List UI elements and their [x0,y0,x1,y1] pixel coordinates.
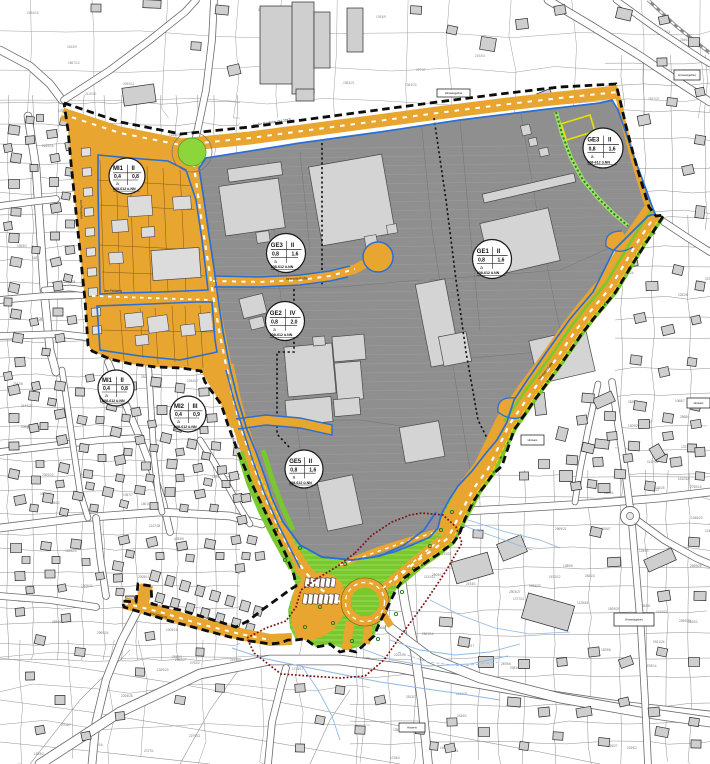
svg-text:2383/21: 2383/21 [343,81,355,85]
svg-text:2513/7: 2513/7 [406,695,416,699]
svg-text:1309/26: 1309/26 [628,424,640,428]
svg-text:2969/21: 2969/21 [555,527,567,531]
svg-text:1728/4: 1728/4 [390,756,400,760]
svg-text:Am Pfarracker: Am Pfarracker [79,200,84,219]
svg-text:1246/24: 1246/24 [705,529,710,533]
svg-text:2205/28: 2205/28 [121,694,133,698]
svg-text:1244/1: 1244/1 [639,549,649,553]
svg-text:2159/2: 2159/2 [627,746,637,750]
svg-text:0,4: 0,4 [114,174,121,180]
svg-text:0,8: 0,8 [589,146,596,152]
svg-text:608-612 ü.NN: 608-612 ü.NN [477,271,500,275]
svg-text:608-612 ü.NN: 608-612 ü.NN [113,187,136,191]
svg-text:1048/20: 1048/20 [691,516,703,520]
svg-text:2434/1: 2434/1 [457,714,467,718]
svg-text:2144/27: 2144/27 [21,404,33,408]
svg-text:II: II [132,166,136,172]
svg-text:Am Feldweg: Am Feldweg [104,289,122,293]
svg-text:II: II [291,243,295,249]
svg-text:0,4: 0,4 [175,412,182,418]
svg-text:608-612 ü.NN: 608-612 ü.NN [271,265,294,269]
svg-text:2599/28: 2599/28 [690,564,702,568]
svg-text:2760/10: 2760/10 [690,485,702,489]
svg-text:1147/28: 1147/28 [149,524,161,528]
svg-text:2192/4: 2192/4 [475,54,485,58]
svg-text:1283/5: 1283/5 [174,537,184,541]
svg-text:MI2: MI2 [174,404,185,410]
svg-text:1152/18: 1152/18 [678,477,690,481]
svg-text:1867/13: 1867/13 [68,61,80,65]
svg-text:1005/16: 1005/16 [166,628,178,632]
svg-text:MI1: MI1 [102,378,113,384]
svg-text:2005/17: 2005/17 [138,575,150,579]
svg-text:2921/24: 2921/24 [653,640,665,644]
svg-text:Hinweisgebiet: Hinweisgebiet [625,618,643,622]
svg-text:0,8: 0,8 [271,319,278,325]
svg-text:Innerortsstraße: Innerortsstraße [286,276,308,281]
svg-text:GE2: GE2 [270,311,283,317]
svg-text:2454/16: 2454/16 [27,11,39,15]
svg-text:0,8: 0,8 [478,257,485,263]
svg-text:1309/24: 1309/24 [81,584,93,588]
svg-text:MI1: MI1 [113,166,124,172]
svg-text:608-612 ü.NN: 608-612 ü.NN [587,161,610,165]
svg-text:II: II [497,249,501,255]
svg-text:0,9: 0,9 [193,412,200,418]
svg-text:1820/1: 1820/1 [688,620,698,624]
svg-text:1523/2: 1523/2 [34,752,44,756]
svg-text:0,8: 0,8 [272,251,279,257]
svg-text:1,6: 1,6 [498,257,505,263]
svg-text:2536/23: 2536/23 [529,584,541,588]
svg-text:0,8: 0,8 [290,467,297,473]
svg-text:1,6: 1,6 [292,251,299,257]
svg-text:III: III [193,404,198,410]
svg-text:1329/20: 1329/20 [157,668,169,672]
svg-text:2903/27: 2903/27 [509,590,521,594]
svg-text:0,4: 0,4 [103,386,110,392]
svg-text:1134/21: 1134/21 [656,610,668,614]
svg-text:2827/27: 2827/27 [648,97,660,101]
svg-text:2727/1: 2727/1 [144,749,154,753]
svg-text:2193/1: 2193/1 [466,582,476,586]
svg-text:II: II [608,138,612,144]
svg-text:0,8: 0,8 [132,174,139,180]
svg-text:2649/14: 2649/14 [42,144,54,148]
svg-text:0,8: 0,8 [121,386,128,392]
svg-text:1734/17: 1734/17 [292,667,304,671]
svg-text:GE1: GE1 [477,249,490,255]
svg-text:2568/1: 2568/1 [680,415,690,419]
svg-text:1325/23: 1325/23 [65,549,77,553]
svg-text:2110/10: 2110/10 [85,92,97,96]
svg-text:II: II [309,459,313,465]
svg-text:608-612 ü.NN: 608-612 ü.NN [270,333,293,337]
svg-text:608-612 ü.NN: 608-612 ü.NN [102,399,125,403]
svg-text:2153/3: 2153/3 [172,655,182,659]
svg-text:1057/7: 1057/7 [123,493,133,497]
svg-text:1727/11: 1727/11 [513,597,525,601]
svg-text:Hinweisgebiet: Hinweisgebiet [445,91,463,95]
svg-text:2501/14: 2501/14 [422,632,434,636]
svg-text:2,0: 2,0 [291,319,298,325]
svg-text:1128/18: 1128/18 [577,601,589,605]
svg-text:Hinweis: Hinweis [694,401,704,405]
svg-text:608-612 ü.NN: 608-612 ü.NN [289,481,312,485]
svg-text:1672/12: 1672/12 [549,575,561,579]
svg-text:II: II [121,378,125,384]
svg-text:1,6: 1,6 [609,146,616,152]
svg-text:2373/22: 2373/22 [705,277,710,281]
svg-text:2279/11: 2279/11 [189,734,201,738]
svg-text:2092/11: 2092/11 [123,82,135,86]
svg-text:1393/9: 1393/9 [376,15,386,19]
svg-text:2792/2: 2792/2 [190,661,200,665]
svg-text:1,6: 1,6 [309,467,316,473]
svg-text:2034/17: 2034/17 [187,379,199,383]
svg-text:GE3: GE3 [587,138,600,144]
svg-text:2821/3: 2821/3 [585,574,595,578]
svg-text:1593/2: 1593/2 [17,244,27,248]
svg-text:2969/24: 2969/24 [97,631,109,635]
svg-text:Hinweisgebiet: Hinweisgebiet [678,73,696,77]
svg-text:1363/23: 1363/23 [405,83,417,87]
svg-text:1529/6: 1529/6 [601,648,611,652]
svg-text:2300/10: 2300/10 [42,473,54,477]
svg-text:Hinweis: Hinweis [407,726,417,730]
svg-text:608-612 ü.NN: 608-612 ü.NN [174,425,197,429]
svg-text:2163/9: 2163/9 [67,45,77,49]
svg-text:GE3: GE3 [271,243,284,249]
svg-text:GE5: GE5 [289,459,302,465]
svg-text:2704/7: 2704/7 [61,723,71,727]
svg-text:IV: IV [290,311,296,317]
svg-text:1509/29: 1509/29 [608,607,620,611]
svg-text:Hinweis: Hinweis [528,438,538,442]
svg-text:2271/7: 2271/7 [416,68,426,72]
svg-text:1389/6: 1389/6 [563,564,573,568]
svg-text:1068/7: 1068/7 [675,399,685,403]
svg-text:2252/6: 2252/6 [678,293,688,297]
